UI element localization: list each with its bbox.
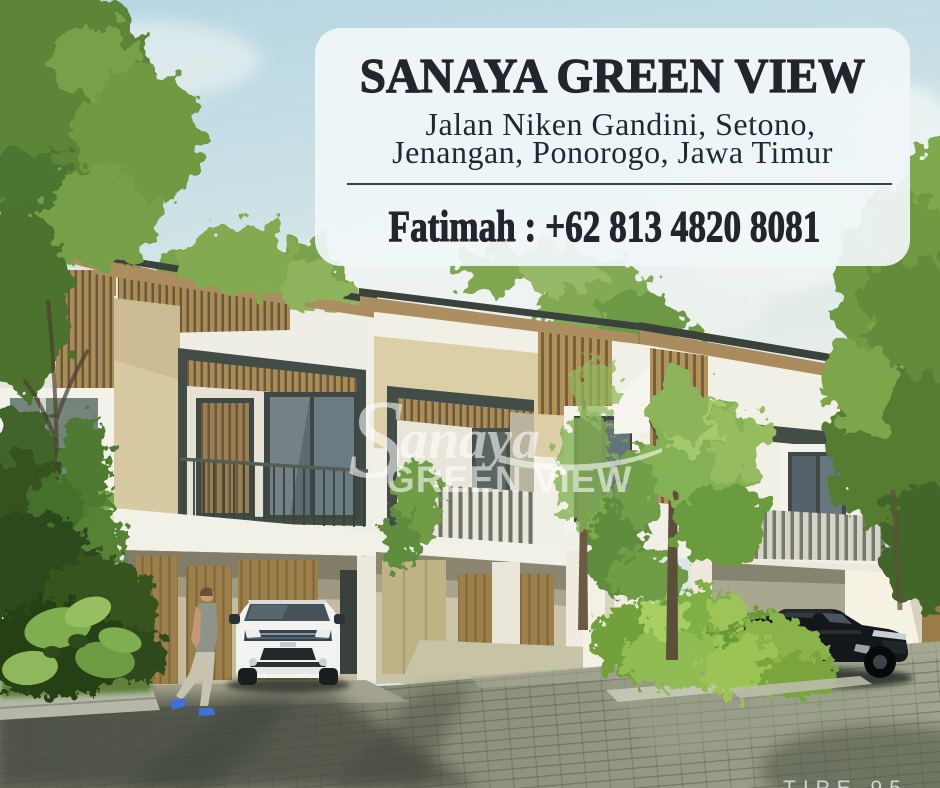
svg-text:GREEN VIEW: GREEN VIEW [386,459,632,500]
svg-text:TIPE 95: TIPE 95 [783,777,908,788]
